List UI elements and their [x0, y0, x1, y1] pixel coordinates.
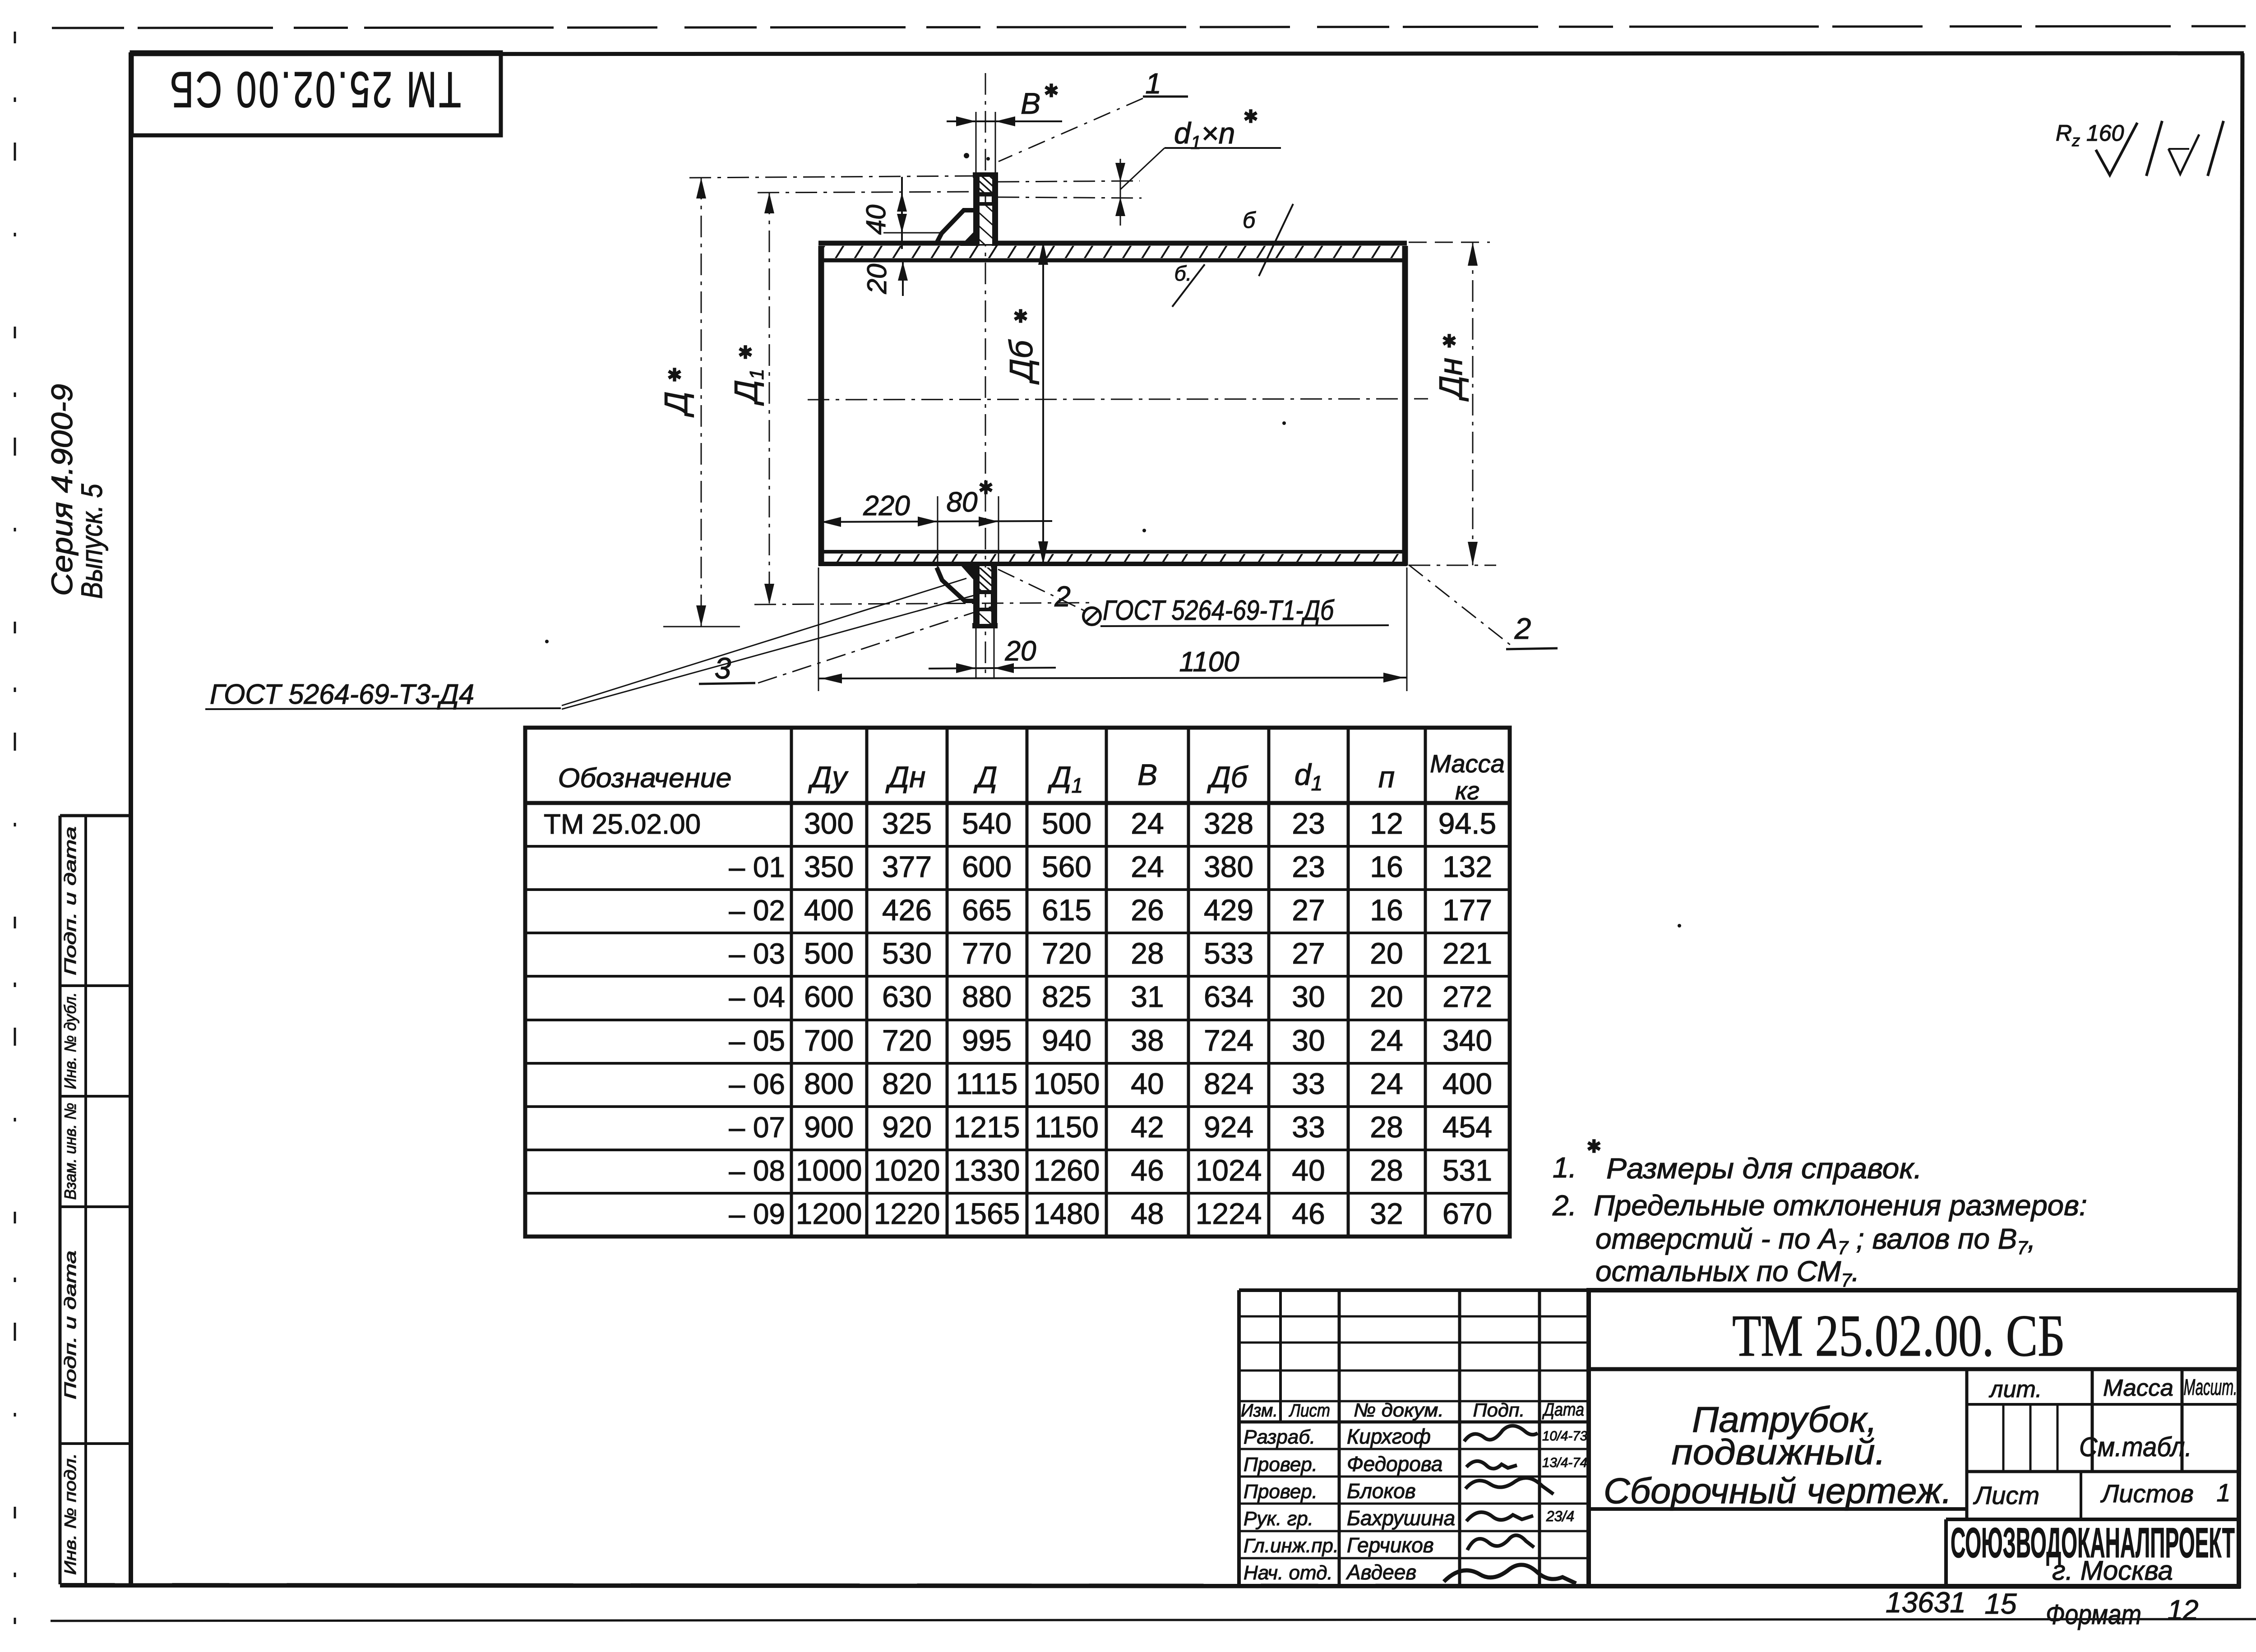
svg-text:500: 500 [804, 937, 854, 970]
svg-text:665: 665 [962, 893, 1012, 927]
svg-text:ГОСТ 5264-69-Т1-Дб: ГОСТ 5264-69-Т1-Дб [1103, 595, 1335, 626]
svg-text:820: 820 [882, 1067, 932, 1100]
svg-text:Инв. № подл.: Инв. № подл. [61, 1453, 79, 1575]
svg-text:770: 770 [962, 937, 1012, 970]
svg-text:№ докум.: № докум. [1354, 1399, 1444, 1421]
svg-text:– 01: – 01 [729, 851, 785, 883]
svg-text:1020: 1020 [874, 1154, 940, 1187]
svg-text:720: 720 [882, 1024, 932, 1057]
svg-text:1: 1 [1145, 67, 1161, 100]
svg-text:Масса: Масса [1430, 749, 1505, 778]
svg-text:80: 80 [947, 487, 978, 518]
svg-text:Серия 4.900-9: Серия 4.900-9 [45, 384, 79, 596]
svg-text:Изм.: Изм. [1241, 1401, 1278, 1421]
svg-text:880: 880 [962, 980, 1012, 1013]
svg-text:24: 24 [1370, 1067, 1403, 1100]
svg-text:✱: ✱ [1013, 307, 1028, 327]
svg-text:380: 380 [1204, 850, 1253, 883]
svg-text:540: 540 [962, 807, 1012, 840]
svg-text:2: 2 [1054, 580, 1071, 613]
svg-text:✱: ✱ [1243, 107, 1258, 127]
svg-text:325: 325 [882, 807, 932, 840]
svg-text:б: б [1243, 208, 1256, 233]
svg-text:94.5: 94.5 [1438, 807, 1496, 840]
svg-text:1150: 1150 [1035, 1110, 1099, 1144]
svg-text:Д: Д [658, 392, 694, 418]
svg-text:В: В [1021, 87, 1040, 120]
svg-text:920: 920 [882, 1110, 932, 1144]
svg-text:533: 533 [1204, 937, 1253, 970]
svg-text:Д: Д [973, 760, 997, 794]
svg-text:13631: 13631 [1886, 1586, 1966, 1619]
svg-text:429: 429 [1204, 893, 1253, 927]
svg-text:1330: 1330 [954, 1154, 1020, 1187]
svg-text:300: 300 [804, 807, 854, 840]
svg-text:20: 20 [1370, 937, 1403, 970]
svg-text:лит.: лит. [1988, 1376, 2042, 1403]
svg-text:426: 426 [882, 893, 932, 927]
svg-text:560: 560 [1042, 850, 1091, 883]
svg-text:1565: 1565 [954, 1197, 1020, 1230]
svg-text:720: 720 [1042, 937, 1091, 970]
svg-text:23: 23 [1292, 807, 1325, 840]
svg-text:33: 33 [1292, 1067, 1325, 1100]
svg-text:27: 27 [1292, 937, 1325, 970]
svg-text:Масшт.: Масшт. [2184, 1375, 2238, 1400]
svg-text:13/4-74: 13/4-74 [1542, 1455, 1587, 1470]
svg-text:400: 400 [1442, 1067, 1492, 1100]
svg-text:1215: 1215 [954, 1110, 1020, 1144]
svg-text:Дб: Дб [1003, 339, 1040, 385]
svg-text:20: 20 [862, 264, 892, 295]
svg-text:Блоков: Блоков [1347, 1479, 1416, 1503]
svg-text:Лист: Лист [1973, 1481, 2039, 1509]
svg-text:1115: 1115 [956, 1067, 1017, 1100]
svg-text:40: 40 [1131, 1067, 1164, 1100]
svg-text:– 08: – 08 [729, 1154, 785, 1187]
svg-text:Дб: Дб [1207, 760, 1248, 794]
svg-text:1050: 1050 [1034, 1067, 1100, 1100]
svg-text:Подп.: Подп. [1473, 1399, 1525, 1421]
svg-text:1000: 1000 [796, 1154, 862, 1187]
svg-text:825: 825 [1042, 980, 1091, 1013]
svg-text:30: 30 [1292, 980, 1325, 1013]
svg-text:1220: 1220 [874, 1197, 940, 1230]
svg-text:272: 272 [1442, 980, 1492, 1013]
svg-text:Дата: Дата [1542, 1400, 1584, 1420]
svg-text:2.: 2. [1552, 1189, 1576, 1222]
svg-text:23/4: 23/4 [1546, 1508, 1574, 1524]
svg-text:377: 377 [882, 850, 932, 883]
svg-text:670: 670 [1442, 1197, 1492, 1230]
svg-text:454: 454 [1442, 1110, 1492, 1144]
svg-text:177: 177 [1442, 893, 1492, 927]
svg-text:Разраб.: Разраб. [1244, 1426, 1315, 1448]
svg-text:27: 27 [1292, 893, 1325, 927]
svg-text:600: 600 [804, 980, 854, 1013]
svg-text:✱: ✱ [978, 478, 994, 498]
svg-text:В: В [1137, 758, 1157, 791]
svg-text:995: 995 [962, 1024, 1012, 1057]
svg-text:ТМ 25.02.00: ТМ 25.02.00 [544, 809, 701, 840]
svg-text:Подп. и дата: Подп. и дата [61, 1251, 79, 1399]
svg-text:Авдеев: Авдеев [1345, 1560, 1416, 1584]
svg-text:530: 530 [882, 937, 932, 970]
svg-text:Листов: Листов [2100, 1479, 2194, 1508]
svg-text:28: 28 [1131, 937, 1164, 970]
svg-text:12: 12 [1370, 807, 1403, 840]
svg-text:п: п [1378, 760, 1395, 794]
svg-text:Герчиков: Герчиков [1347, 1533, 1434, 1557]
svg-text:Рук. гр.: Рук. гр. [1244, 1508, 1313, 1530]
svg-text:340: 340 [1442, 1024, 1492, 1057]
svg-text:Провер.: Провер. [1244, 1454, 1318, 1476]
svg-text:328: 328 [1204, 807, 1253, 840]
svg-text:800: 800 [804, 1067, 854, 1100]
svg-text:24: 24 [1370, 1024, 1403, 1057]
svg-text:24: 24 [1131, 850, 1164, 883]
svg-text:24: 24 [1131, 807, 1164, 840]
svg-text:28: 28 [1370, 1154, 1403, 1187]
svg-text:531: 531 [1442, 1154, 1492, 1187]
svg-text:23: 23 [1292, 850, 1325, 883]
svg-text:✱: ✱ [667, 365, 682, 385]
svg-text:– 03: – 03 [729, 937, 785, 970]
svg-text:20: 20 [1370, 980, 1403, 1013]
svg-text:Предельные отклонения размер: Предельные отклонения размеров: [1594, 1189, 2087, 1222]
svg-text:33: 33 [1292, 1110, 1325, 1144]
svg-text:Ду: Ду [808, 760, 849, 794]
svg-text:отверстий - по А7 ; валов по: отверстий - по А7 ; валов по В7, [1595, 1223, 2036, 1258]
svg-text:400: 400 [804, 893, 854, 927]
svg-text:– 04: – 04 [729, 981, 785, 1013]
svg-text:1024: 1024 [1196, 1154, 1262, 1187]
svg-text:ГОСТ 5264-69-Т3-Д4: ГОСТ 5264-69-Т3-Д4 [210, 679, 474, 710]
svg-text:350: 350 [804, 850, 854, 883]
svg-text:Бахрушина: Бахрушина [1347, 1506, 1455, 1530]
svg-text:132: 132 [1442, 850, 1492, 883]
svg-text:40: 40 [1292, 1154, 1325, 1187]
svg-text:Обозначение: Обозначение [558, 763, 732, 793]
svg-text:Провер.: Провер. [1244, 1481, 1318, 1503]
svg-text:– 06: – 06 [729, 1068, 785, 1100]
svg-text:Федорова: Федорова [1347, 1452, 1442, 1476]
svg-text:824: 824 [1204, 1067, 1253, 1100]
svg-text:221: 221 [1442, 937, 1492, 970]
svg-text:Лист: Лист [1288, 1401, 1330, 1421]
svg-text:38: 38 [1131, 1024, 1164, 1057]
svg-text:46: 46 [1131, 1154, 1164, 1187]
svg-text:Масса: Масса [2103, 1375, 2173, 1401]
svg-text:40: 40 [861, 205, 891, 235]
svg-text:1260: 1260 [1034, 1154, 1100, 1187]
svg-text:Rz 160: Rz 160 [2056, 120, 2124, 150]
svg-text:Дн: Дн [1433, 358, 1469, 401]
svg-text:600: 600 [962, 850, 1012, 883]
svg-text:724: 724 [1204, 1024, 1253, 1057]
svg-text:Подп. и дата: Подп. и дата [61, 826, 79, 975]
svg-text:✱: ✱ [1442, 332, 1457, 351]
svg-text:1100: 1100 [1179, 646, 1239, 678]
svg-text:500: 500 [1042, 807, 1091, 840]
svg-text:Взам. инв. №: Взам. инв. № [61, 1103, 79, 1200]
svg-text:Формат: Формат [2046, 1599, 2141, 1630]
svg-text:28: 28 [1370, 1110, 1403, 1144]
svg-text:700: 700 [804, 1024, 854, 1057]
svg-text:1.: 1. [1553, 1151, 1576, 1184]
svg-text:Размеры для справок.: Размеры для справок. [1606, 1152, 1922, 1185]
svg-text:924: 924 [1204, 1110, 1253, 1144]
svg-text:– 02: – 02 [729, 894, 785, 927]
svg-text:634: 634 [1204, 980, 1253, 1013]
svg-text:– 07: – 07 [729, 1111, 785, 1144]
svg-text:26: 26 [1131, 893, 1164, 927]
svg-text:Гл.инж.пр.: Гл.инж.пр. [1244, 1535, 1339, 1557]
svg-text:10/4-73: 10/4-73 [1542, 1429, 1587, 1444]
svg-text:20: 20 [1005, 636, 1036, 667]
svg-text:Нач. отд.: Нач. отд. [1244, 1562, 1333, 1584]
svg-text:1: 1 [2216, 1478, 2230, 1507]
svg-text:220: 220 [863, 490, 910, 521]
svg-text:1224: 1224 [1196, 1197, 1262, 1230]
svg-text:✱: ✱ [738, 343, 753, 363]
svg-text:615: 615 [1042, 893, 1091, 927]
svg-text:Инв. № дубл.: Инв. № дубл. [61, 992, 79, 1089]
svg-text:ТМ 25.02.00 СБ: ТМ 25.02.00 СБ [168, 61, 461, 118]
svg-text:ТМ 25.02.00. СБ: ТМ 25.02.00. СБ [1732, 1302, 2065, 1369]
svg-text:✱: ✱ [1586, 1137, 1602, 1157]
svg-text:– 05: – 05 [729, 1024, 785, 1057]
svg-text:2: 2 [1514, 612, 1531, 645]
svg-text:1480: 1480 [1034, 1197, 1100, 1230]
svg-text:31: 31 [1131, 980, 1164, 1013]
svg-text:подвижный.: подвижный. [1672, 1432, 1886, 1472]
svg-text:б.: б. [1174, 262, 1192, 285]
svg-text:Дн: Дн [885, 760, 926, 794]
svg-text:См.табл.: См.табл. [2079, 1432, 2192, 1462]
svg-text:Сборочный чертеж.: Сборочный чертеж. [1604, 1471, 1952, 1511]
svg-text:г. Москва: г. Москва [2052, 1555, 2173, 1586]
svg-text:48: 48 [1131, 1197, 1164, 1230]
svg-text:– 09: – 09 [729, 1198, 785, 1230]
svg-text:✱: ✱ [1044, 81, 1059, 101]
svg-text:940: 940 [1042, 1024, 1091, 1057]
svg-text:30: 30 [1292, 1024, 1325, 1057]
svg-text:остальных по СМ7.: остальных по СМ7. [1595, 1255, 1859, 1291]
svg-text:Выпуск. 5: Выпуск. 5 [75, 484, 108, 599]
svg-text:32: 32 [1370, 1197, 1403, 1230]
svg-text:16: 16 [1370, 893, 1403, 927]
svg-text:15: 15 [1984, 1587, 2017, 1620]
svg-text:16: 16 [1370, 850, 1403, 883]
svg-text:Кирхгоф: Кирхгоф [1347, 1425, 1431, 1448]
svg-text:кг: кг [1455, 776, 1479, 805]
svg-text:900: 900 [804, 1110, 854, 1144]
svg-text:630: 630 [882, 980, 932, 1013]
svg-text:1200: 1200 [796, 1197, 862, 1230]
svg-text:42: 42 [1131, 1110, 1164, 1144]
svg-text:46: 46 [1292, 1197, 1325, 1230]
svg-text:12: 12 [2168, 1595, 2199, 1626]
